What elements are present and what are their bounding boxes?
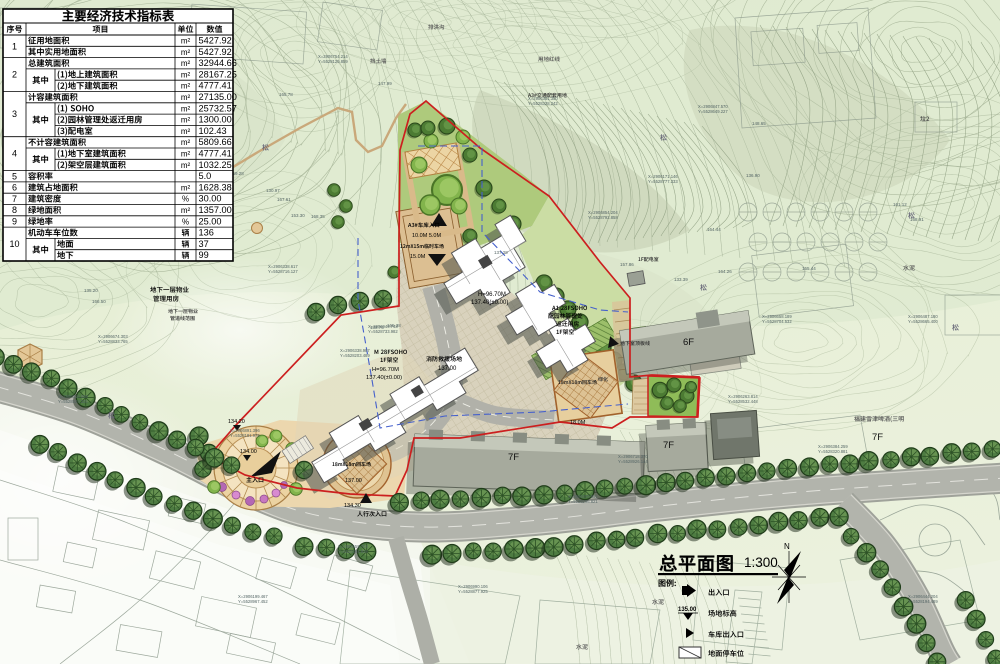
svg-text:m²: m² [181,127,191,136]
svg-text:8: 8 [12,205,17,215]
svg-text:102.43: 102.43 [199,126,227,136]
svg-text:10: 10 [9,239,19,249]
svg-text:1:300: 1:300 [744,555,778,570]
svg-text:Y=5528125.859: Y=5528125.859 [318,59,348,64]
svg-text:2: 2 [12,70,17,80]
svg-text:Y=5528716.127: Y=5528716.127 [268,269,298,274]
svg-text:147.99: 147.99 [378,81,392,86]
svg-text:30.00: 30.00 [199,194,222,204]
svg-text:5427.92: 5427.92 [199,36,232,46]
svg-text:6F: 6F [683,337,694,348]
svg-text:Y=5528384.928: Y=5528384.928 [338,549,368,554]
svg-text:7F: 7F [508,452,519,463]
svg-text:32944.66: 32944.66 [199,58,237,68]
svg-text:m²: m² [181,150,191,159]
svg-text:161.12: 161.12 [893,202,907,207]
svg-text:Y=5528833.765: Y=5528833.765 [98,339,128,344]
svg-text:137.40(±0.00): 137.40(±0.00) [366,375,402,381]
svg-text:137.29: 137.29 [494,250,508,255]
svg-text:137.40(±0.00): 137.40(±0.00) [471,300,508,306]
svg-text:5: 5 [12,171,17,181]
svg-text:9: 9 [12,217,17,227]
svg-text:4777.41: 4777.41 [199,81,232,91]
svg-text:164.44: 164.44 [707,227,721,232]
svg-text:164.26: 164.26 [718,269,732,274]
svg-text:25.00: 25.00 [199,216,222,226]
svg-text:Y=5528704.532: Y=5528704.532 [762,319,792,324]
svg-text:148.65: 148.65 [752,121,766,126]
svg-text:6: 6 [12,183,17,193]
svg-text:m²: m² [181,206,191,215]
svg-text:m²: m² [181,70,191,79]
svg-text:37: 37 [199,239,209,249]
svg-text:134.30: 134.30 [344,503,361,509]
svg-text:N: N [784,542,790,551]
svg-text:Y=5528181.975: Y=5528181.975 [230,433,260,438]
svg-text:Y=5528665.400: Y=5528665.400 [908,319,938,324]
svg-text:137.00: 137.00 [345,478,362,484]
svg-text:Y=5528529.325: Y=5528529.325 [58,399,88,404]
svg-text:4: 4 [12,149,17,159]
svg-text:165.78: 165.78 [279,92,293,97]
svg-text:m²: m² [181,48,191,57]
svg-text:m²: m² [181,183,191,192]
svg-text:10.0M 5.0M: 10.0M 5.0M [412,233,441,239]
svg-text:Y=5528194.489: Y=5528194.489 [908,599,938,604]
svg-text:Y=5528877.925: Y=5528877.925 [458,589,488,594]
svg-text:3: 3 [12,109,17,119]
svg-text:134.20: 134.20 [228,419,245,425]
svg-text:Y=5528296.821: Y=5528296.821 [568,499,598,504]
svg-text:135.00: 135.00 [678,607,697,613]
svg-text:18.0M: 18.0M [570,420,586,426]
svg-text:136.90: 136.90 [746,173,760,178]
svg-text:136: 136 [199,228,214,238]
svg-text:27135.00: 27135.00 [199,92,237,102]
svg-text:15.0M: 15.0M [410,254,426,260]
svg-text:Y=5528926.144: Y=5528926.144 [618,459,648,464]
svg-text:138.75: 138.75 [370,325,384,330]
svg-text:28167.25: 28167.25 [199,69,237,79]
svg-text:5.0: 5.0 [199,171,212,181]
svg-text:Y=5528792.858: Y=5528792.858 [588,215,618,220]
svg-text:m²: m² [181,93,191,102]
svg-text:m²: m² [181,37,191,46]
svg-text:H=96.70M: H=96.70M [372,367,399,373]
svg-text:168.35: 168.35 [311,214,325,219]
svg-text:135.20: 135.20 [84,288,98,293]
svg-text:7F: 7F [663,440,674,451]
svg-text:Y=5528777.333: Y=5528777.333 [648,179,678,184]
svg-text:130.97: 130.97 [266,188,280,193]
svg-text:1628.38: 1628.38 [199,182,232,192]
svg-text:137.00: 137.00 [438,366,457,372]
svg-text:m²: m² [181,116,191,125]
svg-text:Y=5528532.448: Y=5528532.448 [728,399,758,404]
svg-text:%: % [182,195,189,204]
svg-text:155.44: 155.44 [802,266,816,271]
svg-text:1357.00: 1357.00 [199,205,232,215]
svg-text:153.30: 153.30 [291,213,305,218]
svg-text:1: 1 [12,41,17,51]
svg-text:4777.41: 4777.41 [199,149,232,159]
svg-text:m²: m² [181,82,191,91]
svg-text:5809.66: 5809.66 [199,137,232,147]
svg-text:Y=5528320.881: Y=5528320.881 [818,449,848,454]
svg-text:166.50: 166.50 [92,299,106,304]
svg-text:%: % [182,217,189,226]
svg-text:157.86: 157.86 [620,262,634,267]
svg-text:Y=5528649.227: Y=5528649.227 [698,109,728,114]
svg-text:m²: m² [181,138,191,147]
svg-text:Y=5528328.242: Y=5528328.242 [528,101,558,106]
svg-text:134.00: 134.00 [240,449,257,455]
svg-text:1300.00: 1300.00 [199,115,232,125]
svg-text:Y=5528203.489: Y=5528203.489 [340,353,370,358]
svg-text:H=96.70M: H=96.70M [478,292,506,298]
svg-text:168.91: 168.91 [910,217,924,222]
svg-text:25732.57: 25732.57 [199,103,237,113]
svg-text:99: 99 [199,250,209,260]
svg-text:m²: m² [181,104,191,113]
svg-text:m²: m² [181,59,191,68]
svg-text:133.39: 133.39 [674,277,688,282]
svg-text:167.61: 167.61 [277,197,291,202]
svg-text:1032.25: 1032.25 [199,160,232,170]
svg-text:7: 7 [12,194,17,204]
svg-text:165.38: 165.38 [387,323,401,328]
svg-text:Y=5528967.452: Y=5528967.452 [238,599,268,604]
svg-text:7F: 7F [872,432,883,443]
svg-text:5427.92: 5427.92 [199,47,232,57]
svg-text:m²: m² [181,161,191,170]
